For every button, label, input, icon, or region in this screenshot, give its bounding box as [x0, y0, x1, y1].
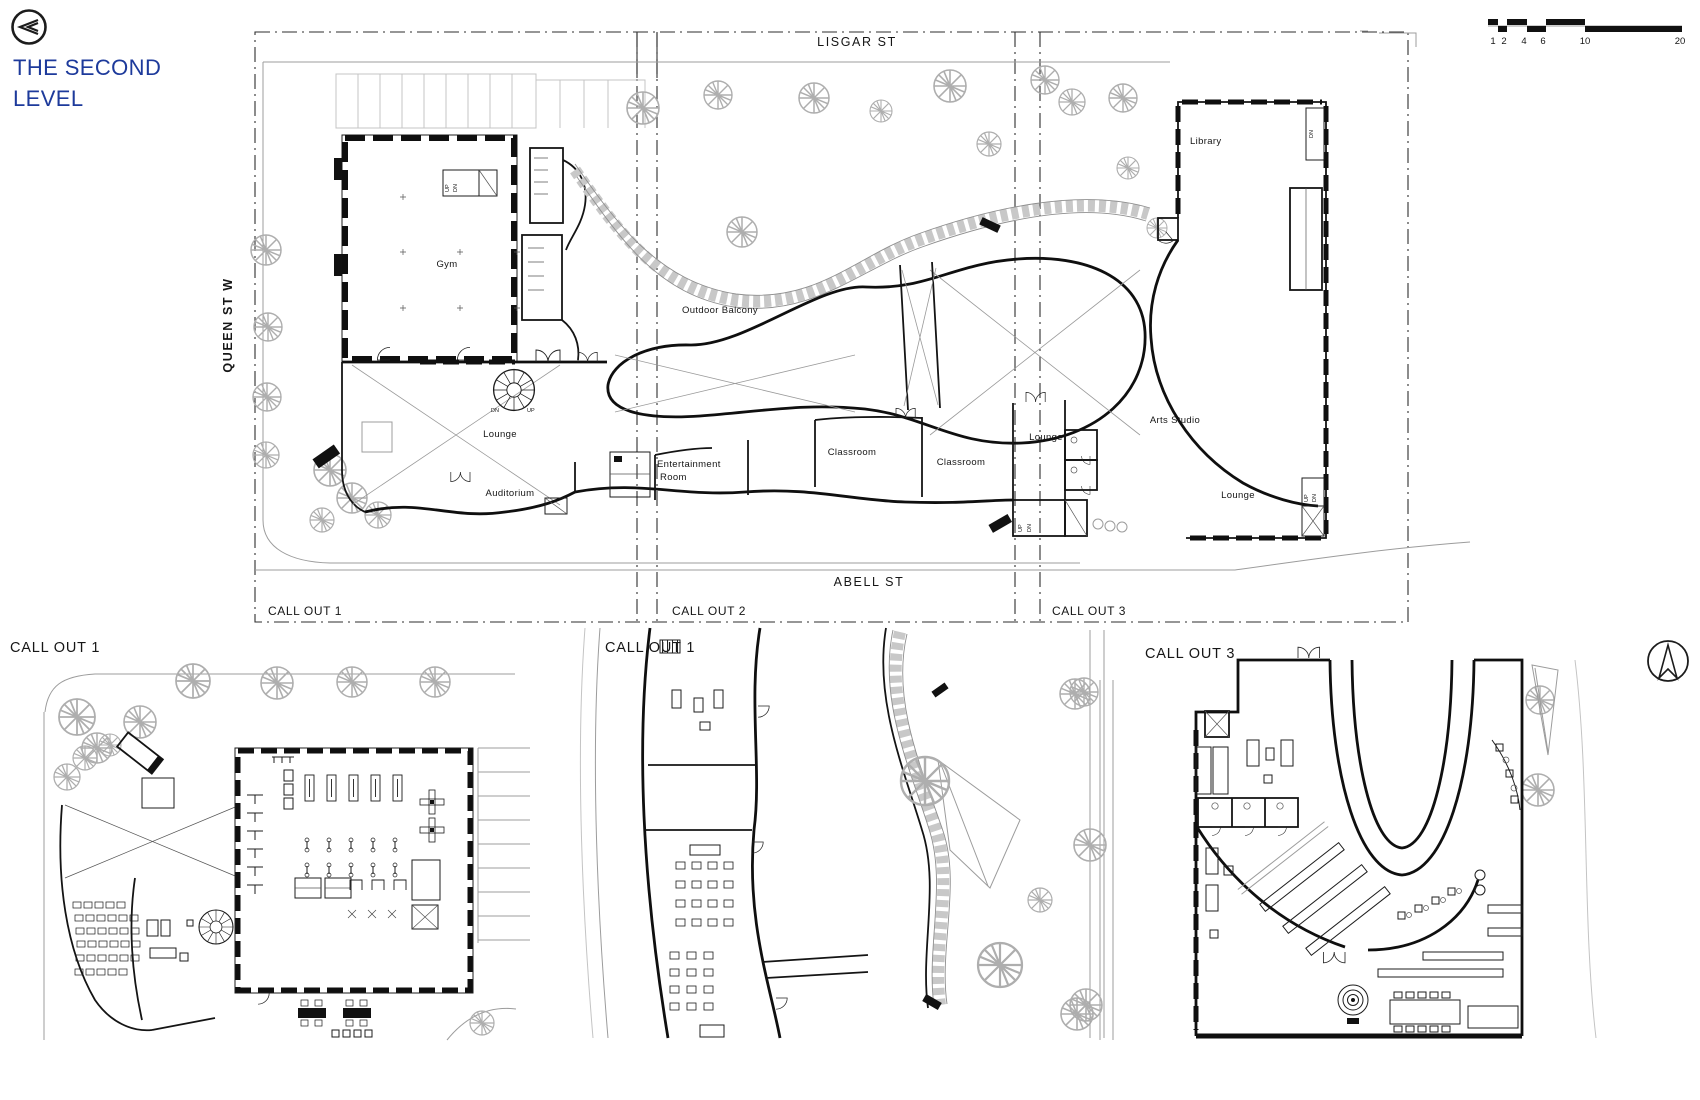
detail3-planter [1532, 660, 1596, 1038]
stair-labels: UP DN DN UP UP DN DN UP DN [445, 130, 1318, 532]
roof-parapet [336, 74, 645, 128]
main-plan: Gym Library Outdoor Balcony Lounge Audit… [221, 31, 1470, 622]
scale-tick-2: 2 [1501, 36, 1506, 47]
detail1-parking [478, 748, 530, 943]
stair-up: UP [445, 184, 451, 192]
spiral-dn: DN [491, 408, 499, 414]
detail3-stools [1398, 888, 1462, 919]
detail2-desk-grid-a [676, 862, 733, 926]
detail1-gym [235, 748, 473, 1004]
detail2-title: CALL OUT 1 [605, 640, 695, 656]
detail1-auditorium-seats [73, 902, 140, 975]
detail3-tables [1390, 992, 1518, 1032]
detail3-spiral-feature [1338, 985, 1368, 1024]
scale-bar: 1 2 4 6 10 20 [1488, 19, 1685, 47]
label-entertainment-2: Room [660, 472, 687, 483]
gym-room [334, 135, 520, 362]
label-outdoor-balcony: Outdoor Balcony [682, 305, 758, 316]
detail3-curve-seats [1492, 740, 1520, 810]
detail1-title: CALL OUT 1 [10, 640, 100, 656]
scale-tick-4: 4 [1521, 36, 1526, 47]
callout-zone-2: CALL OUT 2 [672, 604, 746, 618]
scale-tick-10: 10 [1580, 36, 1591, 47]
property-boundary [255, 32, 1408, 622]
detail1-lounge-furniture [147, 920, 193, 961]
detail2-desk-grid-b [670, 952, 713, 1010]
street-queen: QUEEN ST W [221, 277, 235, 372]
detail3-couches [1206, 848, 1233, 938]
callout-zone-1: CALL OUT 1 [268, 604, 342, 618]
label-library: Library [1190, 136, 1222, 147]
label-arts-studio: Arts Studio [1150, 415, 1200, 426]
label-lounge-mid: Lounge [1029, 432, 1063, 443]
column-grid [400, 194, 520, 311]
detail2-trees [901, 679, 1093, 1030]
street-abell: ABELL ST [834, 575, 905, 589]
detail-callout3: CALL OUT 3 [1070, 646, 1596, 1040]
detail3-washrooms [1198, 798, 1298, 835]
midstair-dn: DN [1027, 524, 1033, 532]
spiral-up: UP [527, 408, 535, 414]
detail-callout1: CALL OUT 1 [10, 640, 530, 1040]
scale-tick-6: 6 [1540, 36, 1545, 47]
label-auditorium: Auditorium [486, 488, 535, 499]
label-classroom-2: Classroom [937, 457, 986, 468]
label-lounge-right: Lounge [1221, 490, 1255, 501]
drawing-sheet: THE SECOND LEVEL [0, 0, 1700, 1100]
scale-tick-20: 20 [1675, 36, 1686, 47]
detail3-upper-furniture [1247, 740, 1293, 783]
label-classroom-1: Classroom [828, 447, 877, 458]
label-lounge-left: Lounge [483, 429, 517, 440]
scale-tick-1: 1 [1490, 36, 1495, 47]
site-context [251, 31, 1470, 570]
street-lisgar: LISGAR ST [817, 35, 897, 49]
libelev-up: UP [1304, 494, 1310, 502]
library-block [1150, 102, 1326, 538]
label-entertainment-1: Entertainment [657, 459, 721, 470]
detail3-trees [1070, 678, 1554, 1021]
detail-callout2: CALL OUT 1 [580, 628, 1104, 1038]
stair-dn: DN [453, 184, 459, 192]
detail1-trees [54, 664, 494, 1035]
callout-zone-labels: CALL OUT 1 CALL OUT 2 CALL OUT 3 [268, 604, 1126, 618]
detail1-tables [298, 1000, 372, 1037]
room-labels: Gym Library Outdoor Balcony Lounge Audit… [436, 136, 1254, 501]
lounge-auditorium-block [312, 350, 607, 514]
north-arrow-icon [1648, 641, 1688, 681]
libelev-dn: DN [1312, 494, 1318, 502]
callout-zone-3: CALL OUT 3 [1052, 604, 1126, 618]
libstair-dn: DN [1309, 130, 1315, 138]
label-gym: Gym [436, 259, 457, 270]
detail3-title: CALL OUT 3 [1145, 646, 1235, 662]
service-rooms [522, 148, 586, 360]
midstair-up: UP [1018, 524, 1024, 532]
